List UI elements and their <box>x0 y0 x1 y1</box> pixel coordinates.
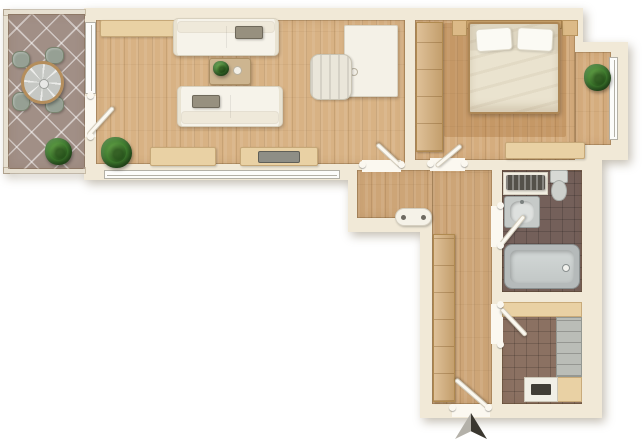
living-sideboard-top <box>100 20 188 37</box>
desk <box>344 25 398 97</box>
floors-layer <box>0 0 642 439</box>
jamb-dot <box>461 160 468 167</box>
balcony-plant <box>45 138 72 165</box>
patio-chair-4 <box>45 96 64 113</box>
living-door-threshold <box>362 160 401 172</box>
kitchen-door-leaf <box>499 307 528 337</box>
bed-headboard <box>466 20 562 29</box>
jamb-dot <box>485 404 492 411</box>
stove <box>524 377 558 402</box>
coffee-table-plant <box>213 61 229 76</box>
bathroom-floor <box>502 170 582 292</box>
entrance-door-leaf <box>454 377 490 409</box>
fridge-shelves <box>556 317 582 377</box>
bathroom-door-leaf <box>499 214 526 246</box>
north-arrow <box>452 413 490 439</box>
nightstand-right <box>562 20 578 36</box>
living-sideboard-right <box>240 147 318 166</box>
living-door-leaf <box>375 142 403 168</box>
coffee-table <box>209 58 251 85</box>
bathroom-door-opening <box>491 206 503 247</box>
floor-plan <box>0 0 642 439</box>
hall-wardrobe <box>433 234 455 402</box>
bath-sink <box>504 196 540 228</box>
bedroom-door-threshold <box>430 158 465 171</box>
patio-chair-2 <box>45 47 64 64</box>
living-room-window <box>104 170 340 179</box>
patio-chair-3 <box>12 92 30 111</box>
jamb-dot <box>497 301 504 308</box>
bathtub <box>504 244 580 289</box>
bedroom-door-leaf <box>434 143 462 168</box>
bedroom-dresser <box>505 142 585 159</box>
hall-floor-upper <box>357 170 492 218</box>
openings-layer <box>0 0 642 439</box>
walls-main-block <box>84 8 583 180</box>
bath-shelf <box>503 172 548 195</box>
balcony-window <box>85 22 96 94</box>
bedroom-floor <box>415 20 575 160</box>
jamb-dot <box>427 160 434 167</box>
nightstand-left <box>452 20 467 36</box>
living-plant <box>101 137 132 168</box>
balcony-railing-left <box>4 10 9 173</box>
kitchen-door-opening <box>491 304 503 344</box>
desk-knob <box>350 68 358 76</box>
bedroom-wardrobe <box>416 22 443 152</box>
jamb-dot <box>87 92 94 99</box>
bedroom-window <box>609 57 618 140</box>
bedroom-rug <box>444 23 566 137</box>
bedroom-plant <box>584 64 611 91</box>
walls-hall-bath-block <box>348 160 602 232</box>
sofa-lower-tray <box>192 95 220 108</box>
hall-bench <box>395 208 432 226</box>
balcony-railing-top <box>4 10 85 15</box>
patio-chair-1 <box>12 51 30 68</box>
sofa-upper <box>173 18 279 56</box>
living-sideboard-left <box>150 147 216 166</box>
desk-chair <box>310 54 352 100</box>
jamb-dot <box>359 161 366 168</box>
bath-towel-radiator <box>506 175 545 190</box>
jamb-dot <box>87 133 94 140</box>
tv-on-sideboard <box>258 151 300 163</box>
patio-table <box>21 61 64 104</box>
hall-floor-lower <box>432 170 492 404</box>
jamb-dot <box>497 341 504 348</box>
balcony-floor <box>8 14 85 169</box>
walls-bedroom-bay <box>583 42 628 160</box>
jamb-dot <box>398 161 405 168</box>
doors-layer <box>0 0 642 439</box>
bedroom-bay-floor <box>575 52 611 145</box>
annotations-layer <box>0 0 642 439</box>
jamb-dot <box>497 242 504 249</box>
balcony-railing-bottom <box>4 168 85 173</box>
balcony-door-leaf <box>86 106 115 138</box>
walls-lower-block <box>420 232 602 418</box>
furniture-layer <box>0 0 642 439</box>
double-bed <box>468 22 560 114</box>
kitchen-floor <box>502 302 582 404</box>
sofa-lower <box>177 86 283 127</box>
entrance-opening <box>452 404 490 417</box>
living-room-floor <box>96 20 405 164</box>
jamb-dot <box>497 202 504 209</box>
balcony-door-opening <box>85 96 96 137</box>
kitchen-counter-right <box>556 377 582 402</box>
jamb-dot <box>449 404 456 411</box>
kitchen-counter-top <box>502 302 582 317</box>
sofa-upper-tray <box>235 26 263 39</box>
toilet <box>549 170 569 202</box>
coffee-table-dish <box>233 66 242 75</box>
walls-layer <box>0 0 642 439</box>
